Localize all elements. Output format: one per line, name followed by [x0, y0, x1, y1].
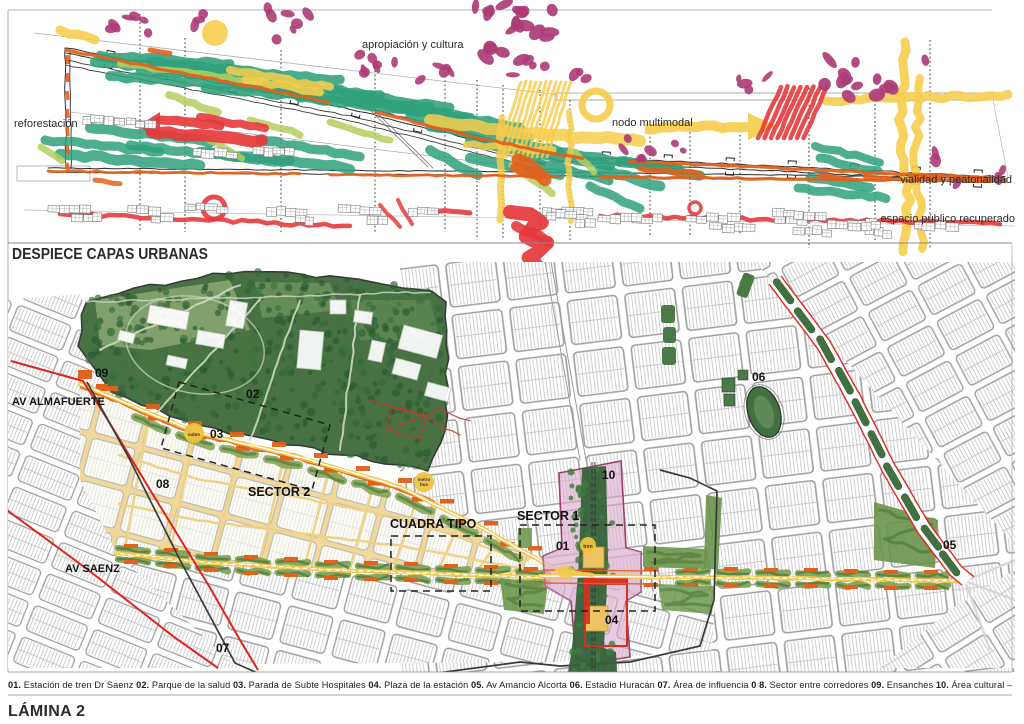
svg-text:vialidad y peatonalidad: vialidad y peatonalidad	[900, 174, 1012, 186]
svg-text:LÁMINA 2: LÁMINA 2	[8, 701, 85, 720]
svg-text:03: 03	[210, 427, 224, 441]
svg-text:bus: bus	[420, 482, 428, 487]
svg-text:01: 01	[556, 539, 570, 553]
svg-text:DESPIECE CAPAS URBANAS: DESPIECE CAPAS URBANAS	[12, 246, 208, 263]
svg-text:AV ALMAFUERTE: AV ALMAFUERTE	[12, 396, 105, 408]
svg-text:01. Estación de tren Dr Saenz: 01. Estación de tren Dr Saenz 02. Parque…	[8, 680, 1013, 690]
svg-text:SECTOR 2: SECTOR 2	[248, 485, 310, 499]
svg-text:07: 07	[216, 641, 230, 655]
svg-text:10: 10	[602, 468, 616, 482]
svg-text:09: 09	[95, 366, 109, 380]
svg-text:subte: subte	[188, 432, 200, 437]
svg-text:nodo multimodal: nodo multimodal	[612, 117, 693, 129]
svg-text:08: 08	[156, 477, 170, 491]
svg-text:02: 02	[246, 387, 260, 401]
svg-text:05: 05	[943, 538, 957, 552]
svg-text:CUADRA TIPO: CUADRA TIPO	[390, 517, 477, 531]
svg-text:SECTOR 1: SECTOR 1	[517, 509, 579, 523]
svg-text:espacio público recuperado: espacio público recuperado	[880, 213, 1015, 225]
svg-text:04: 04	[605, 613, 619, 627]
svg-text:reforestación: reforestación	[14, 118, 78, 130]
svg-text:tren: tren	[583, 544, 592, 550]
svg-text:AV SAENZ: AV SAENZ	[65, 563, 120, 575]
svg-text:06: 06	[752, 370, 766, 384]
svg-text:apropiación y cultura: apropiación y cultura	[362, 39, 464, 51]
